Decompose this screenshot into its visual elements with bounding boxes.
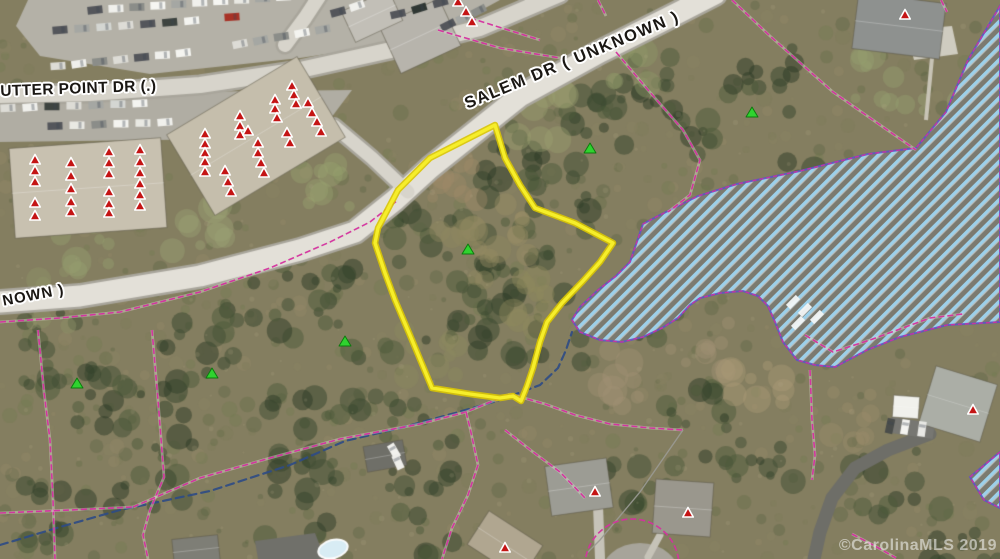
watermark: ©CarolinaMLS 2019 (839, 537, 997, 555)
aerial-map: UTTER POINT DR (.) SALEM DR ( UNKNOWN ) … (0, 0, 1000, 559)
